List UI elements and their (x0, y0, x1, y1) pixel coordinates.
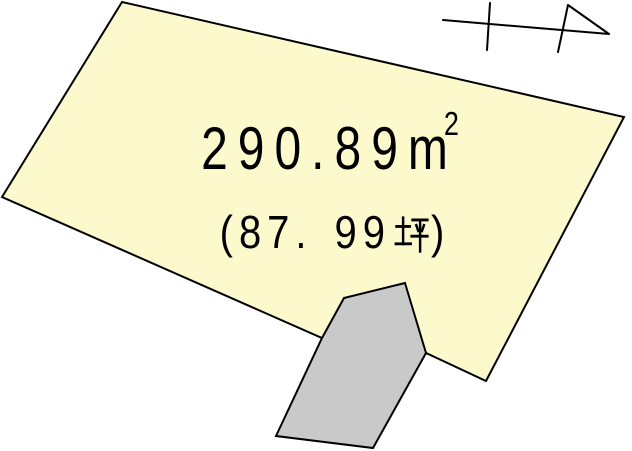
area-m2-value: 290.89 (201, 116, 408, 182)
area-tsubo-value-b: 99 (335, 208, 392, 259)
tsubo-kanji-glyph (395, 210, 429, 254)
land-parcel-shape (2, 2, 624, 381)
area-m2-label: 290.89m2 (201, 120, 459, 180)
square-meter-unit: m (408, 116, 448, 182)
area-tsubo-close-paren: ) (431, 208, 444, 259)
plot-plan: 290.89m2 (87.99 ) (0, 0, 632, 451)
area-tsubo-label: (87.99 ) (220, 210, 445, 256)
north-arrow-icon (443, 3, 609, 52)
square-meter-exponent: 2 (444, 108, 459, 142)
area-tsubo-value-a: (87. (220, 208, 313, 259)
